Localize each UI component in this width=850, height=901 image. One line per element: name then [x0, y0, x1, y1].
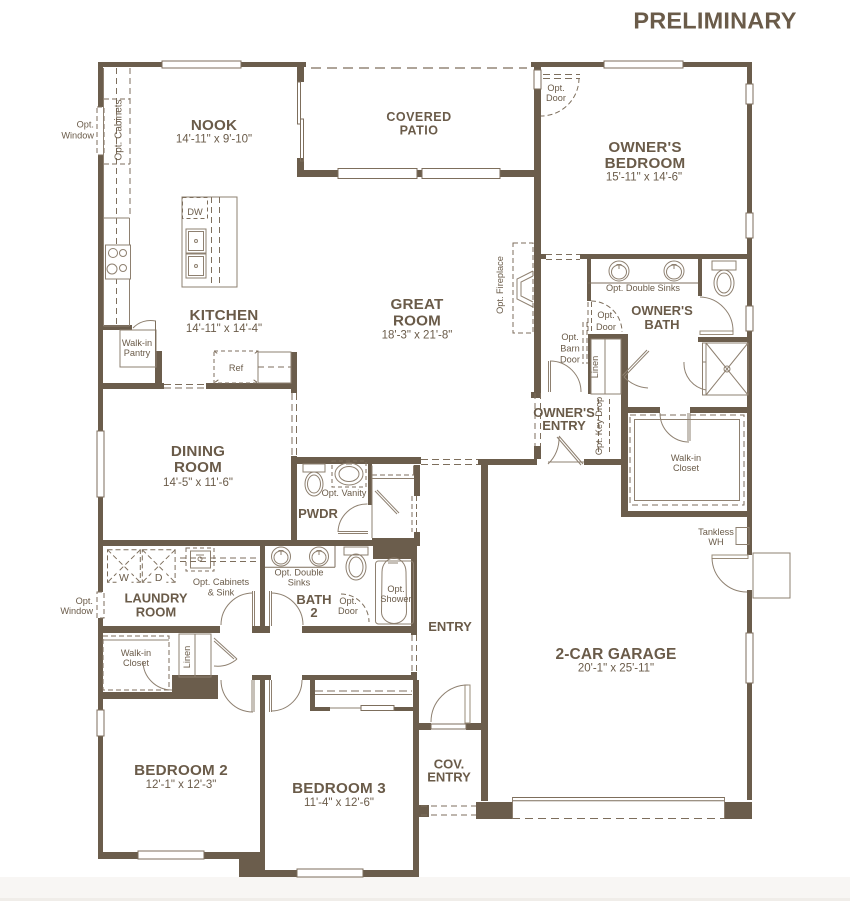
- svg-text:GREAT: GREAT: [390, 296, 444, 313]
- svg-text:PATIO: PATIO: [400, 124, 439, 138]
- svg-text:Barn: Barn: [560, 344, 579, 354]
- svg-text:Door: Door: [596, 322, 616, 332]
- svg-text:COVERED: COVERED: [386, 110, 451, 124]
- svg-text:20'-1" x 25'-11": 20'-1" x 25'-11": [578, 663, 654, 675]
- svg-text:18'-3" x 21'-8": 18'-3" x 21'-8": [382, 330, 453, 342]
- svg-text:Opt.: Opt.: [547, 83, 564, 93]
- svg-text:ENTRY: ENTRY: [427, 770, 471, 785]
- svg-text:Opt. Key Drop: Opt. Key Drop: [594, 397, 604, 455]
- svg-text:ROOM: ROOM: [393, 313, 441, 330]
- svg-text:KITCHEN: KITCHEN: [190, 307, 259, 324]
- svg-text:ENTRY: ENTRY: [428, 619, 472, 634]
- svg-text:Opt. Double Sinks: Opt. Double Sinks: [606, 283, 680, 293]
- svg-text:14'-11" x 9'-10": 14'-11" x 9'-10": [176, 134, 252, 146]
- svg-text:Opt.: Opt.: [339, 596, 356, 606]
- svg-text:OWNER'S: OWNER'S: [631, 303, 693, 318]
- svg-text:BEDROOM: BEDROOM: [605, 155, 686, 172]
- svg-text:PWDR: PWDR: [298, 506, 338, 521]
- svg-text:14'-5" x 11'-6": 14'-5" x 11'-6": [163, 477, 233, 489]
- svg-text:Opt. Double: Opt. Double: [274, 568, 323, 578]
- svg-text:DW: DW: [187, 207, 203, 217]
- svg-text:Closet: Closet: [123, 658, 149, 668]
- svg-text:Walk-in: Walk-in: [122, 338, 152, 348]
- svg-text:Tankless: Tankless: [698, 527, 734, 537]
- svg-text:Pantry: Pantry: [124, 348, 151, 358]
- svg-text:2-CAR GARAGE: 2-CAR GARAGE: [556, 646, 677, 663]
- svg-text:NOOK: NOOK: [191, 117, 237, 134]
- svg-text:ENTRY: ENTRY: [542, 418, 586, 433]
- svg-text:Window: Window: [61, 131, 94, 141]
- svg-text:ROOM: ROOM: [136, 605, 176, 620]
- svg-text:Opt. Fireplace: Opt. Fireplace: [495, 256, 505, 314]
- svg-text:W: W: [119, 572, 129, 584]
- svg-text:Opt.: Opt.: [76, 596, 93, 606]
- svg-text:Opt. Cabinets: Opt. Cabinets: [114, 99, 125, 160]
- svg-text:Closet: Closet: [673, 463, 699, 473]
- svg-text:Door: Door: [338, 606, 358, 616]
- svg-text:Opt.: Opt.: [77, 120, 94, 130]
- svg-text:DINING: DINING: [171, 443, 225, 460]
- svg-text:Opt. Cabinets: Opt. Cabinets: [193, 577, 250, 587]
- svg-text:OWNER'S: OWNER'S: [608, 139, 681, 156]
- svg-text:2: 2: [310, 605, 317, 620]
- svg-text:Walk-in: Walk-in: [121, 648, 151, 658]
- svg-text:BEDROOM 3: BEDROOM 3: [292, 780, 386, 797]
- svg-text:Opt. Vanity: Opt. Vanity: [322, 488, 367, 498]
- svg-text:Walk-in: Walk-in: [671, 453, 701, 463]
- svg-text:Ref: Ref: [229, 363, 244, 373]
- svg-text:15'-11" x 14'-6": 15'-11" x 14'-6": [606, 172, 682, 184]
- svg-text:14'-11" x 14'-4": 14'-11" x 14'-4": [186, 323, 262, 335]
- svg-text:WH: WH: [708, 537, 723, 547]
- svg-text:Opt.: Opt.: [387, 584, 404, 594]
- svg-text:LAUNDRY: LAUNDRY: [124, 591, 187, 606]
- svg-text:PRELIMINARY: PRELIMINARY: [633, 8, 796, 34]
- svg-text:D: D: [155, 572, 163, 584]
- svg-text:12'-1" x 12'-3": 12'-1" x 12'-3": [146, 779, 217, 791]
- svg-text:Sinks: Sinks: [288, 578, 311, 588]
- svg-text:Window: Window: [60, 606, 93, 616]
- svg-text:Door: Door: [546, 93, 566, 103]
- svg-text:Opt.: Opt.: [561, 332, 578, 342]
- svg-text:ROOM: ROOM: [174, 459, 222, 476]
- svg-text:BATH: BATH: [644, 317, 679, 332]
- svg-text:Shower: Shower: [380, 594, 411, 604]
- svg-text:Linen: Linen: [182, 646, 192, 668]
- svg-text:Opt.: Opt.: [597, 310, 614, 320]
- svg-text:Door: Door: [560, 355, 580, 365]
- svg-text:& Sink: & Sink: [208, 588, 235, 598]
- svg-text:Linen: Linen: [590, 356, 600, 378]
- svg-text:11'-4" x 12'-6": 11'-4" x 12'-6": [304, 797, 374, 809]
- svg-text:BEDROOM 2: BEDROOM 2: [134, 762, 228, 779]
